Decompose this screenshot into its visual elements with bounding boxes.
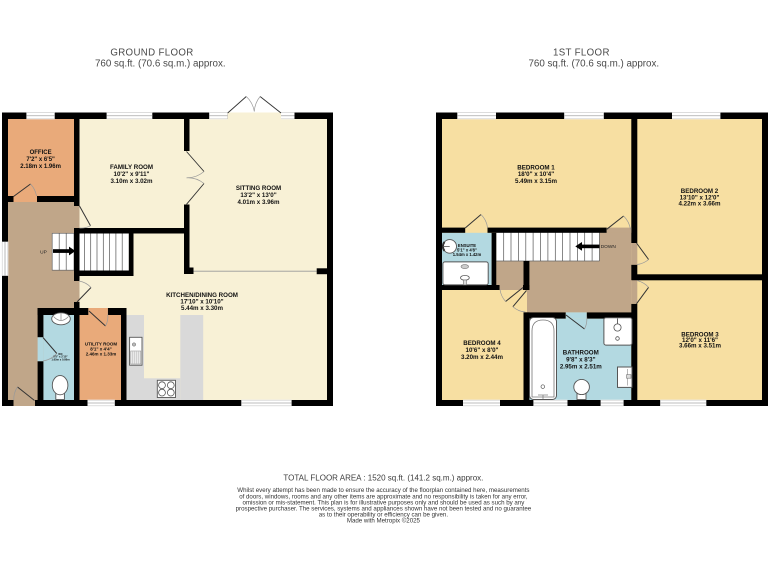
svg-text:TOTAL FLOOR AREA : 1520 sq.ft.: TOTAL FLOOR AREA : 1520 sq.ft. (141.2 sq…	[283, 474, 483, 483]
svg-text:10'6" x 8'0": 10'6" x 8'0"	[466, 347, 499, 354]
svg-text:7'2" x 6'5": 7'2" x 6'5"	[26, 157, 55, 163]
svg-text:OFFICE: OFFICE	[30, 150, 52, 156]
svg-text:DOWN: DOWN	[601, 244, 617, 250]
svg-text:SITTING ROOM: SITTING ROOM	[236, 185, 281, 192]
svg-text:BEDROOM 4: BEDROOM 4	[463, 340, 501, 347]
svg-text:5.44m x 3.30m: 5.44m x 3.30m	[181, 305, 223, 312]
svg-text:760 sq.ft. (70.6 sq.m.) approx: 760 sq.ft. (70.6 sq.m.) approx.	[528, 58, 659, 69]
svg-text:5.49m x 3.15m: 5.49m x 3.15m	[515, 178, 557, 185]
svg-text:4.01m x 3.96m: 4.01m x 3.96m	[238, 199, 280, 206]
svg-text:3.10m x 3.02m: 3.10m x 3.02m	[111, 178, 153, 185]
svg-text:1.54m x 1.42m: 1.54m x 1.42m	[453, 252, 482, 257]
svg-text:Made with Metropix ©2025: Made with Metropix ©2025	[347, 517, 421, 524]
svg-text:2.18m x 1.96m: 2.18m x 1.96m	[20, 164, 61, 170]
svg-text:UP: UP	[40, 249, 47, 255]
svg-text:3.66m x 3.51m: 3.66m x 3.51m	[679, 343, 721, 350]
svg-text:13'2" x 13'0": 13'2" x 13'0"	[240, 192, 276, 199]
svg-text:GROUND FLOOR: GROUND FLOOR	[110, 48, 193, 59]
svg-text:2.95m x 2.51m: 2.95m x 2.51m	[560, 363, 602, 370]
svg-text:3.20m x 2.44m: 3.20m x 2.44m	[461, 354, 503, 361]
svg-text:1ST FLOOR: 1ST FLOOR	[553, 48, 610, 59]
svg-text:760 sq.ft. (70.6 sq.m.) approx: 760 sq.ft. (70.6 sq.m.) approx.	[95, 58, 226, 69]
svg-text:2.46m x 1.33m: 2.46m x 1.33m	[86, 352, 117, 357]
svg-text:4.22m x 3.66m: 4.22m x 3.66m	[679, 201, 721, 208]
svg-text:1.65m x 0.86m: 1.65m x 0.86m	[51, 358, 70, 362]
